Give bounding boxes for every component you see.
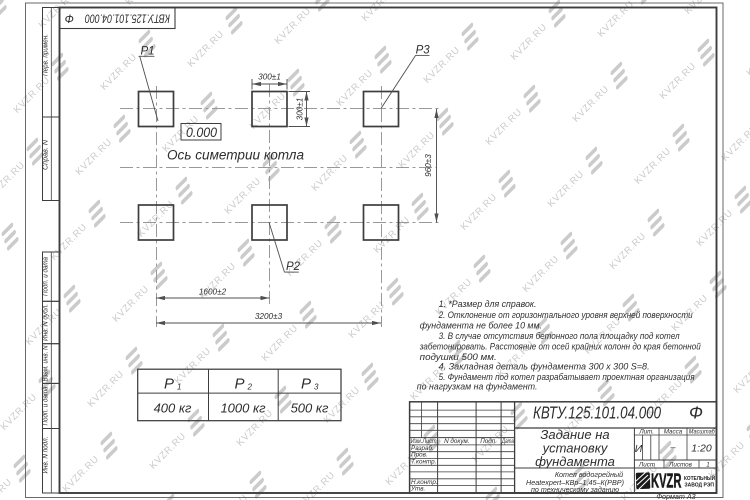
svg-text:KVZR: KVZR <box>651 469 682 492</box>
svg-text:Ось симетрии котла: Ось симетрии котла <box>167 148 304 163</box>
svg-text:5. Фундамент под котел разраба: 5. Фундамент под котел разрабатывает про… <box>439 372 695 382</box>
svg-text:Перв. примен.: Перв. примен. <box>41 34 49 76</box>
svg-text:Лист: Лист <box>638 461 655 468</box>
svg-text:1000 кг: 1000 кг <box>220 401 266 416</box>
svg-text:Ф: Ф <box>689 403 703 423</box>
svg-text:Утв.: Утв. <box>410 486 425 493</box>
svg-text:Листов: Листов <box>668 461 693 468</box>
svg-text:4. Закладная деталь фундамента: 4. Закладная деталь фундамента 300 x 300… <box>439 362 650 372</box>
svg-text:Инв. N дубл.: Инв. N дубл. <box>41 304 49 341</box>
svg-text:N докум.: N докум. <box>444 437 469 445</box>
svg-text:300±1: 300±1 <box>296 98 305 121</box>
svg-text:1600±2: 1600±2 <box>199 288 227 297</box>
svg-text:300±1: 300±1 <box>258 73 281 82</box>
svg-text:фундамента не более 10 мм.: фундамента не более 10 мм. <box>420 321 542 331</box>
svg-text:КВТУ.125.101.04.000: КВТУ.125.101.04.000 <box>533 403 661 423</box>
svg-text:Подп. и дата: Подп. и дата <box>41 257 49 296</box>
svg-text:ЗАВОД РЭП: ЗАВОД РЭП <box>685 483 715 489</box>
svg-text:1:20: 1:20 <box>691 443 712 455</box>
svg-text:960±3: 960±3 <box>424 154 433 177</box>
svg-text:500 кг: 500 кг <box>291 401 329 416</box>
svg-text:Ф: Ф <box>65 12 74 24</box>
svg-text:400 кг: 400 кг <box>154 401 192 416</box>
svg-text:фундамента: фундамента <box>535 454 615 469</box>
svg-text:по техническому заданию: по техническому заданию <box>531 485 620 494</box>
svg-text:3200±3: 3200±3 <box>255 312 283 321</box>
svg-text:Дата: Дата <box>501 438 514 445</box>
svg-text:И: И <box>635 443 643 455</box>
svg-text:–: – <box>669 442 676 452</box>
svg-text:КВТУ.125.101.04.000: КВТУ.125.101.04.000 <box>85 12 170 24</box>
svg-text:КОТЕЛЬНЫЙ: КОТЕЛЬНЫЙ <box>684 474 715 482</box>
svg-text:Т.контр.: Т.контр. <box>411 459 436 466</box>
svg-text:Справ. N: Справ. N <box>41 139 49 170</box>
svg-text:1: 1 <box>706 461 710 468</box>
svg-text:Подп.: Подп. <box>480 437 497 445</box>
svg-text:Лит.: Лит. <box>638 428 654 435</box>
svg-text:Масса: Масса <box>664 428 683 435</box>
svg-text:Подп. и дата: Подп. и дата <box>41 386 49 425</box>
svg-text:P2: P2 <box>286 261 301 273</box>
svg-text:Масштаб: Масштаб <box>689 427 715 435</box>
svg-text:подушки 500 мм.: подушки 500 мм. <box>420 352 497 362</box>
svg-text:3. В случае отсутствия бетонно: 3. В случае отсутствия бетонного пола пл… <box>439 331 680 341</box>
svg-text:0.000: 0.000 <box>186 124 217 140</box>
svg-text:2. Отклонение от горизонтально: 2. Отклонение от горизонтального уровня … <box>438 310 693 320</box>
svg-text:P3: P3 <box>416 44 431 56</box>
svg-text:забетонировать. Расстояние от: забетонировать. Расстояние от осей крайн… <box>419 342 701 352</box>
svg-text:Формат А3: Формат А3 <box>656 492 695 500</box>
svg-text:по нагрузкам на фундамент.: по нагрузкам на фундамент. <box>417 382 538 392</box>
svg-text:1. *Размер для справок.: 1. *Размер для справок. <box>439 299 537 309</box>
svg-text:Взам. инв. N: Взам. инв. N <box>41 345 49 382</box>
svg-text:Инв. N подл.: Инв. N подл. <box>41 436 49 473</box>
svg-text:Разраб.: Разраб. <box>411 444 434 452</box>
svg-text:P1: P1 <box>141 45 155 57</box>
